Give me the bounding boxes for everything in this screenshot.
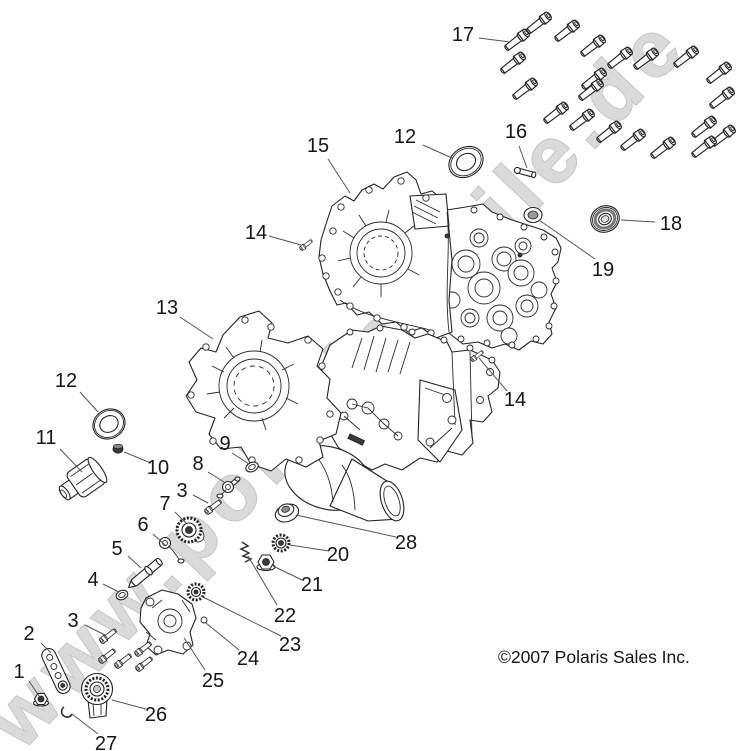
parts-diagram: www.polaris-teile.de [0,0,750,751]
callout-label-12: 12 [55,370,77,392]
callout-label-2: 2 [23,623,34,645]
callout-label-3: 3 [176,480,187,502]
callout-label-4: 4 [87,569,98,591]
callout-label-14: 14 [504,389,526,411]
callout-label-9: 9 [219,433,230,455]
copyright-text: ©2007 Polaris Sales Inc. [498,647,690,667]
callout-label-1: 1 [13,661,24,683]
callout-label-26: 26 [145,704,167,726]
callout-label-6: 6 [137,514,148,536]
cap-10 [113,444,123,453]
callout-label-7: 7 [159,493,170,515]
callout-label-12: 12 [394,126,416,148]
callout-label-15: 15 [307,135,329,157]
callout-label-13: 13 [156,297,178,319]
callout-label-20: 20 [327,544,349,566]
callout-label-27: 27 [95,733,117,751]
callout-label-10: 10 [147,457,169,479]
callout-label-17: 17 [452,24,474,46]
callout-label-8: 8 [192,453,203,475]
callout-label-19: 19 [592,259,614,281]
callout-label-24: 24 [237,648,259,670]
callout-label-5: 5 [111,538,122,560]
callout-label-11: 11 [36,427,57,449]
callout-label-28: 28 [395,532,417,554]
callout-label-23: 23 [279,634,301,656]
callout-label-3: 3 [67,610,78,632]
callout-label-16: 16 [505,121,527,143]
callout-label-25: 25 [202,670,224,692]
callout-label-18: 18 [660,213,682,235]
parts-diagram-page: www.polaris-teile.de [0,0,750,751]
pin-24 [201,617,207,623]
callout-label-22: 22 [274,605,296,627]
gear-20 [273,535,289,551]
rotor-23 [188,584,204,600]
callout-label-21: 21 [301,574,323,596]
callout-label-14: 14 [245,222,267,244]
